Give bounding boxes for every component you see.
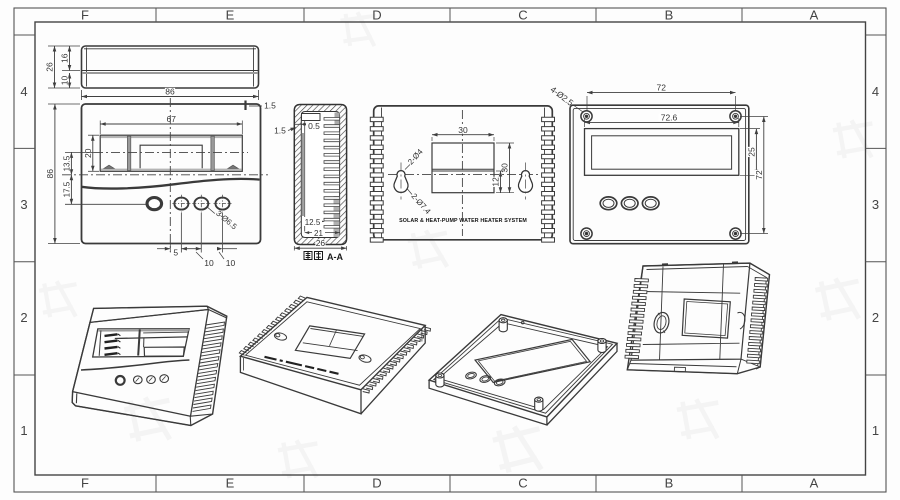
svg-text:72.6: 72.6 bbox=[661, 112, 678, 122]
svg-text:10: 10 bbox=[204, 258, 214, 268]
svg-text:1.5: 1.5 bbox=[264, 101, 276, 111]
svg-text:C: C bbox=[518, 476, 527, 491]
svg-text:E: E bbox=[226, 8, 235, 23]
svg-text:B: B bbox=[665, 476, 674, 491]
svg-text:A: A bbox=[810, 476, 819, 491]
svg-text:4: 4 bbox=[872, 84, 879, 99]
svg-text:12: 12 bbox=[491, 177, 501, 187]
svg-text:SOLAR & HEAT-PUMP WATER HEATER: SOLAR & HEAT-PUMP WATER HEATER SYSTEM bbox=[399, 218, 527, 224]
svg-text:E: E bbox=[226, 476, 235, 491]
svg-text:2: 2 bbox=[872, 310, 879, 325]
svg-text:C: C bbox=[518, 8, 527, 23]
svg-text:10: 10 bbox=[226, 258, 236, 268]
svg-text:16: 16 bbox=[60, 53, 70, 63]
svg-text:25: 25 bbox=[746, 147, 756, 157]
svg-text:1.5: 1.5 bbox=[274, 126, 286, 136]
svg-text:21: 21 bbox=[314, 229, 323, 238]
svg-text:12.5: 12.5 bbox=[305, 218, 321, 227]
svg-text:26: 26 bbox=[316, 238, 326, 248]
svg-text:D: D bbox=[372, 8, 381, 23]
svg-text:5: 5 bbox=[173, 248, 178, 258]
svg-text:3: 3 bbox=[872, 197, 879, 212]
svg-text:13.5: 13.5 bbox=[62, 155, 71, 171]
svg-text:4: 4 bbox=[20, 84, 27, 99]
svg-text:30: 30 bbox=[458, 125, 468, 135]
svg-text:17.5: 17.5 bbox=[62, 181, 71, 197]
svg-text:3: 3 bbox=[20, 197, 27, 212]
svg-text:26: 26 bbox=[45, 62, 55, 72]
svg-text:D: D bbox=[372, 476, 381, 491]
svg-text:1: 1 bbox=[872, 423, 879, 438]
svg-text:20: 20 bbox=[83, 148, 93, 158]
svg-text:86: 86 bbox=[165, 87, 175, 97]
svg-text:B: B bbox=[665, 8, 674, 23]
svg-text:10: 10 bbox=[60, 76, 70, 86]
svg-text:0.5: 0.5 bbox=[308, 121, 320, 131]
svg-text:72: 72 bbox=[657, 83, 667, 93]
svg-text:A: A bbox=[810, 8, 819, 23]
svg-text:67: 67 bbox=[167, 114, 177, 124]
svg-text:1: 1 bbox=[20, 423, 27, 438]
svg-text:72: 72 bbox=[754, 170, 764, 180]
svg-text:F: F bbox=[81, 476, 89, 491]
svg-text:86: 86 bbox=[45, 169, 55, 179]
svg-text:A-A: A-A bbox=[327, 252, 343, 262]
svg-text:F: F bbox=[81, 8, 89, 23]
svg-text:2: 2 bbox=[20, 310, 27, 325]
